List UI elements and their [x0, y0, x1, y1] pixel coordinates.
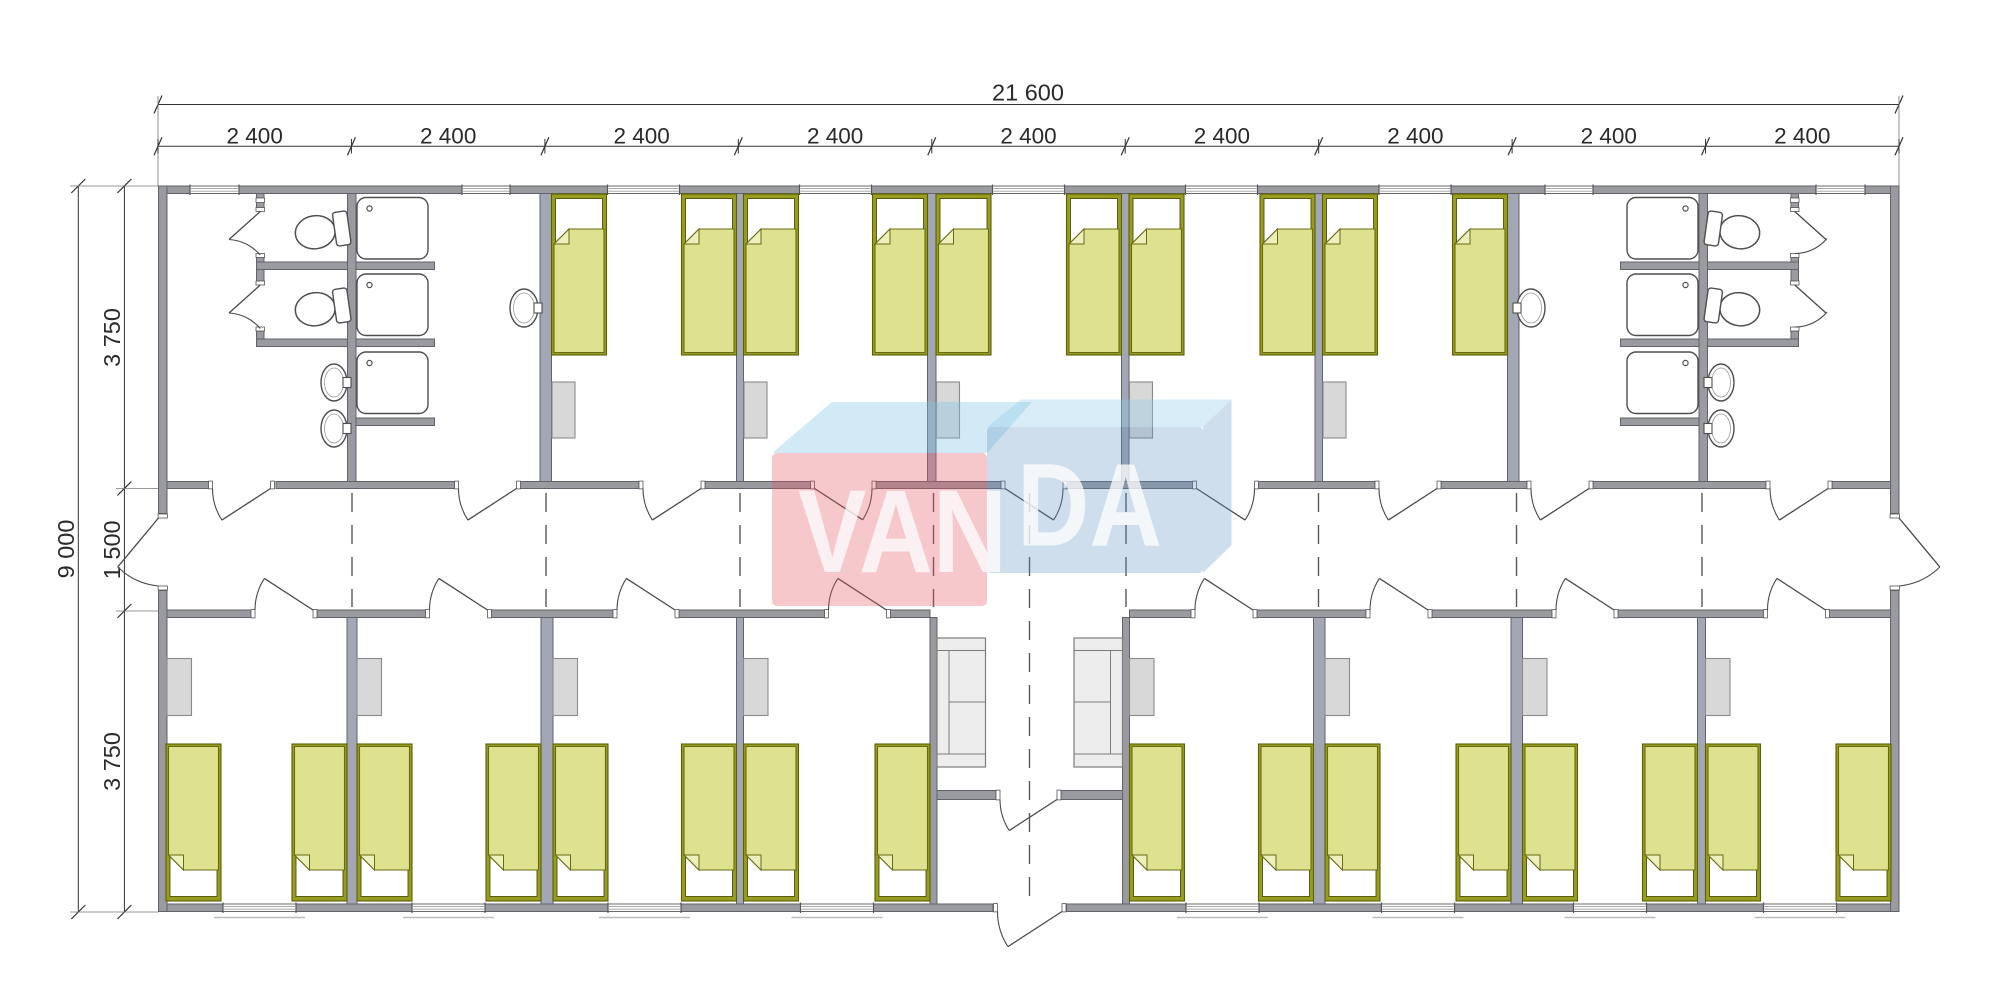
svg-text:3 750: 3 750 [99, 732, 125, 791]
svg-text:2 400: 2 400 [613, 124, 669, 149]
svg-text:9 000: 9 000 [53, 520, 79, 579]
svg-text:3 750: 3 750 [99, 308, 125, 367]
svg-text:2 400: 2 400 [1194, 124, 1250, 149]
svg-text:VAN: VAN [798, 466, 1007, 598]
svg-text:2 400: 2 400 [420, 124, 476, 149]
svg-text:2 400: 2 400 [807, 124, 863, 149]
svg-text:21 600: 21 600 [992, 80, 1064, 106]
svg-text:2 400: 2 400 [1000, 124, 1056, 149]
svg-text:2 400: 2 400 [1774, 124, 1830, 149]
svg-text:2 400: 2 400 [227, 124, 283, 149]
svg-text:2 400: 2 400 [1581, 124, 1637, 149]
svg-text:2 400: 2 400 [1387, 124, 1443, 149]
svg-text:DA: DA [1017, 440, 1162, 572]
